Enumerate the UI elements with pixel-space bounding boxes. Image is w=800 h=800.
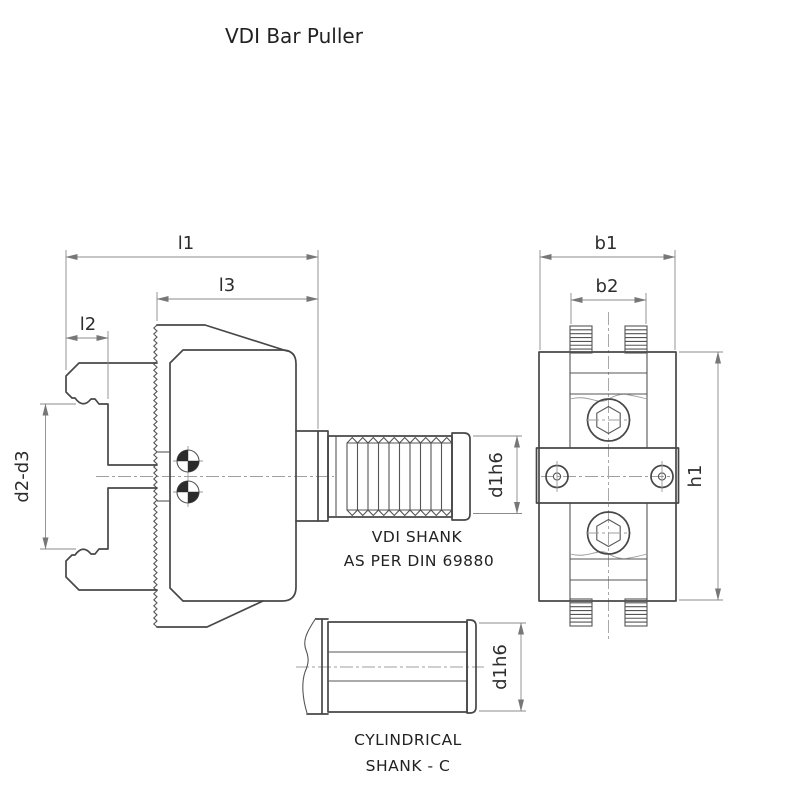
right-view: b1 b2 h1 — [537, 233, 724, 641]
vdi-shank-caption-line1: VDI SHANK — [372, 528, 463, 546]
body-block — [170, 350, 296, 601]
shank-flange — [318, 431, 328, 521]
head-top-chamfer — [157, 325, 287, 351]
dim-label-h1: h1 — [685, 465, 706, 488]
lower-claw — [66, 488, 157, 590]
thread-profile — [347, 438, 452, 516]
vdi-shank-caption-line2: AS PER DIN 69880 — [344, 552, 495, 570]
dim-label-l1: l1 — [178, 233, 194, 254]
page-title: VDI Bar Puller — [225, 24, 364, 48]
dim-d2-d3: d2-d3 — [12, 404, 76, 549]
left-view: d1h6 l1 l3 l2 d2-d3 VDI SHANK AS PER DIN — [12, 233, 522, 627]
dim-label-d2-d3: d2-d3 — [12, 450, 33, 502]
upper-claw — [66, 363, 157, 465]
broken-flange — [303, 618, 328, 714]
serrated-edge — [154, 325, 157, 627]
shank-neck — [296, 431, 318, 521]
dim-d1h6-vdi: d1h6 — [473, 436, 522, 514]
datum-target-upper — [173, 446, 203, 476]
dim-label-l3: l3 — [219, 275, 235, 296]
dim-l1: l1 — [66, 233, 318, 429]
clamp-band — [537, 448, 679, 503]
cylinder-body — [328, 620, 476, 713]
shank-end-cap — [452, 433, 470, 520]
dim-d1h6-cyl: d1h6 — [479, 623, 526, 711]
vdi-bar-puller-drawing: VDI Bar Puller — [0, 0, 800, 800]
dim-label-d1h6-cyl: d1h6 — [490, 644, 511, 690]
dim-h1: h1 — [679, 352, 723, 600]
datum-target-lower — [173, 477, 203, 507]
cylindrical-caption-line1: CYLINDRICAL — [354, 731, 462, 749]
head-bottom-chamfer — [157, 601, 263, 627]
dim-label-b2: b2 — [596, 276, 619, 297]
cylindrical-caption-line2: SHANK - C — [366, 757, 451, 775]
dim-l3: l3 — [157, 275, 318, 321]
dim-label-l2: l2 — [80, 314, 96, 335]
cylinder-end-cap — [467, 620, 476, 713]
dim-label-d1h6-vdi: d1h6 — [486, 452, 507, 498]
cylindrical-shank-view: d1h6 CYLINDRICAL SHANK - C — [296, 618, 526, 775]
break-line — [303, 618, 316, 713]
dim-l2: l2 — [66, 314, 108, 399]
dim-label-b1: b1 — [595, 233, 618, 254]
vdi-shank — [328, 433, 470, 520]
technical-drawing-page: VDI Bar Puller — [0, 0, 800, 800]
